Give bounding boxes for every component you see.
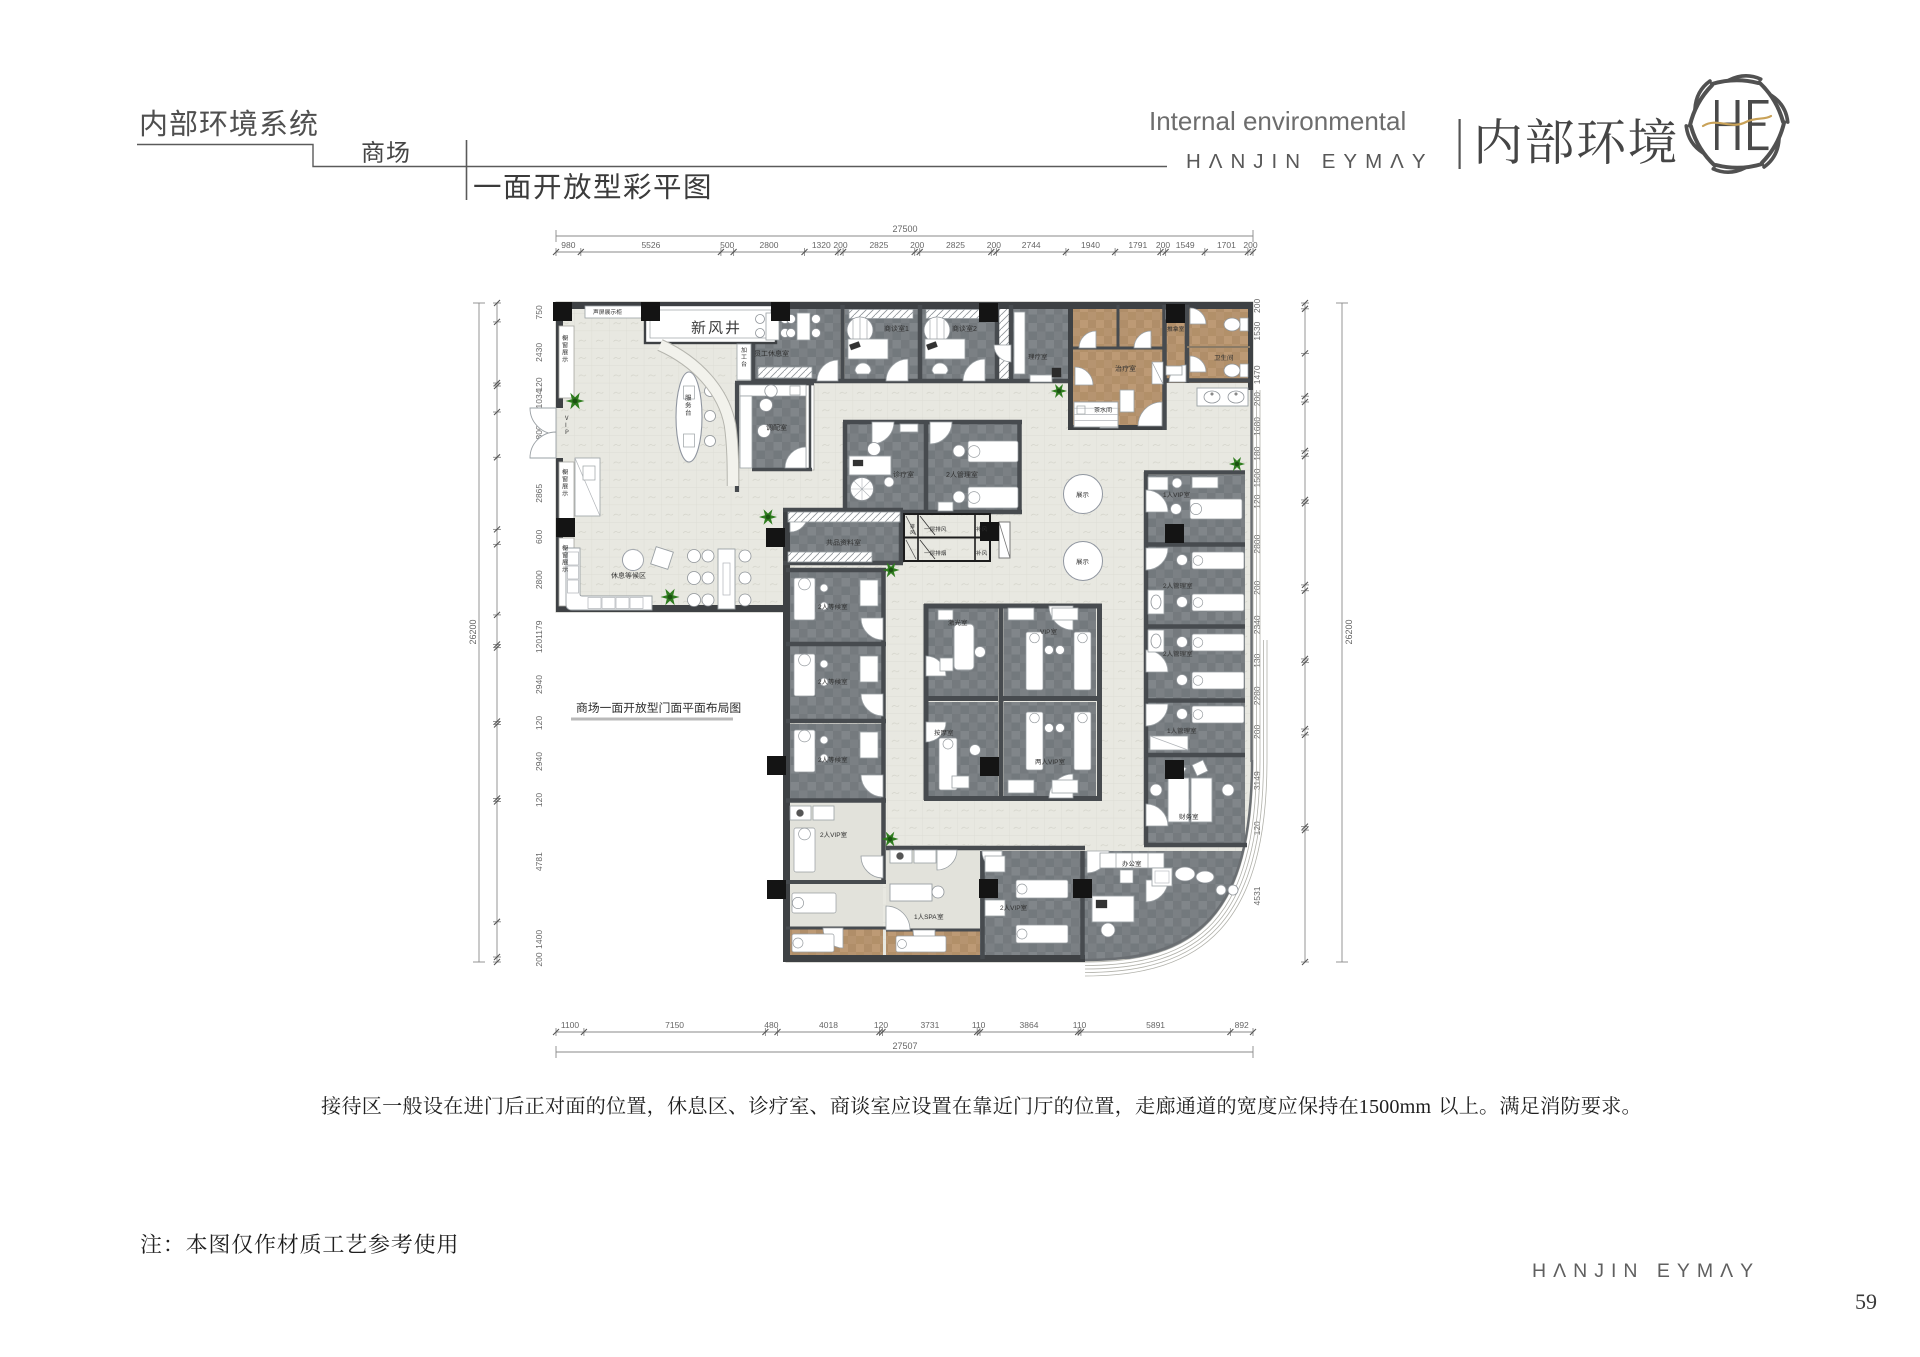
svg-text:1500mm: 1500mm (1359, 1096, 1432, 1118)
svg-text:120: 120 (1252, 821, 1262, 835)
svg-text:1: 1 (905, 326, 909, 333)
svg-text:SPA: SPA (924, 914, 937, 921)
svg-text:3149: 3149 (1252, 771, 1262, 790)
svg-text:1: 1 (1163, 492, 1167, 499)
svg-text:VIP: VIP (830, 832, 840, 839)
svg-text:2825: 2825 (869, 240, 888, 250)
svg-text:7150: 7150 (665, 1020, 684, 1030)
svg-text:110: 110 (1073, 1020, 1087, 1030)
svg-text:2: 2 (946, 472, 950, 479)
svg-text:120: 120 (534, 377, 544, 391)
svg-text:2: 2 (1163, 583, 1167, 590)
svg-text:892: 892 (1235, 1020, 1249, 1030)
svg-text:1034: 1034 (534, 389, 544, 408)
svg-text:980: 980 (561, 240, 575, 250)
svg-text:110: 110 (972, 1020, 986, 1030)
svg-text:5526: 5526 (641, 240, 660, 250)
svg-text:VIP: VIP (1040, 629, 1050, 636)
svg-text:1100: 1100 (561, 1020, 580, 1030)
svg-text:1791: 1791 (1128, 240, 1147, 250)
svg-text:VIP: VIP (1048, 759, 1058, 766)
svg-text:2430: 2430 (534, 343, 544, 362)
svg-text:3731: 3731 (920, 1020, 939, 1030)
svg-text:HΛNJIN EYMΛY: HΛNJIN EYMΛY (1532, 1260, 1760, 1282)
svg-text:2: 2 (818, 679, 822, 686)
svg-text:HΛNJIN EYMΛY: HΛNJIN EYMΛY (1186, 150, 1434, 173)
svg-text:3864: 3864 (1020, 1020, 1039, 1030)
svg-text:27507: 27507 (892, 1041, 917, 1051)
svg-text:1320: 1320 (812, 240, 831, 250)
svg-text:26200: 26200 (468, 619, 478, 644)
svg-text:200: 200 (1156, 240, 1170, 250)
svg-text:1400: 1400 (534, 930, 544, 949)
svg-text:1179: 1179 (534, 620, 544, 639)
svg-text:200: 200 (534, 952, 544, 966)
svg-text:120: 120 (874, 1020, 888, 1030)
svg-text:5891: 5891 (1146, 1020, 1165, 1030)
svg-text:2940: 2940 (534, 752, 544, 771)
svg-text:120: 120 (534, 639, 544, 653)
svg-text:120: 120 (534, 716, 544, 730)
svg-text:2: 2 (820, 832, 824, 839)
svg-text:200: 200 (987, 240, 1001, 250)
svg-text:2: 2 (1163, 651, 1167, 658)
svg-text:4781: 4781 (534, 852, 544, 871)
svg-text:VIP: VIP (1010, 905, 1020, 912)
svg-text:200: 200 (910, 240, 924, 250)
svg-text:200: 200 (1243, 240, 1257, 250)
svg-text:2: 2 (1000, 905, 1004, 912)
svg-text:2800: 2800 (760, 240, 779, 250)
svg-text:2865: 2865 (534, 484, 544, 503)
svg-text:26200: 26200 (1344, 619, 1354, 644)
svg-text:750: 750 (534, 305, 544, 319)
svg-text:1549: 1549 (1176, 240, 1195, 250)
svg-text:1: 1 (1167, 728, 1171, 735)
svg-text:2825: 2825 (946, 240, 965, 250)
svg-text:1701: 1701 (1217, 240, 1236, 250)
svg-text:59: 59 (1855, 1289, 1877, 1314)
svg-text:4531: 4531 (1252, 886, 1262, 905)
svg-text:VIP: VIP (1173, 492, 1183, 499)
svg-text:600: 600 (534, 530, 544, 544)
svg-text:Internal environmental: Internal environmental (1149, 106, 1406, 136)
svg-text:200: 200 (833, 240, 847, 250)
svg-text:1: 1 (914, 914, 918, 921)
svg-text:27500: 27500 (892, 224, 917, 234)
svg-text:2744: 2744 (1022, 240, 1041, 250)
svg-text:2: 2 (973, 326, 977, 333)
svg-text:2940: 2940 (534, 675, 544, 694)
svg-text:480: 480 (764, 1020, 778, 1030)
svg-text:120: 120 (534, 793, 544, 807)
svg-text:2: 2 (818, 757, 822, 764)
svg-text:500: 500 (720, 240, 734, 250)
svg-text:2: 2 (818, 604, 822, 611)
svg-text:2800: 2800 (534, 570, 544, 589)
svg-text:4018: 4018 (819, 1020, 838, 1030)
svg-text:1940: 1940 (1081, 240, 1100, 250)
